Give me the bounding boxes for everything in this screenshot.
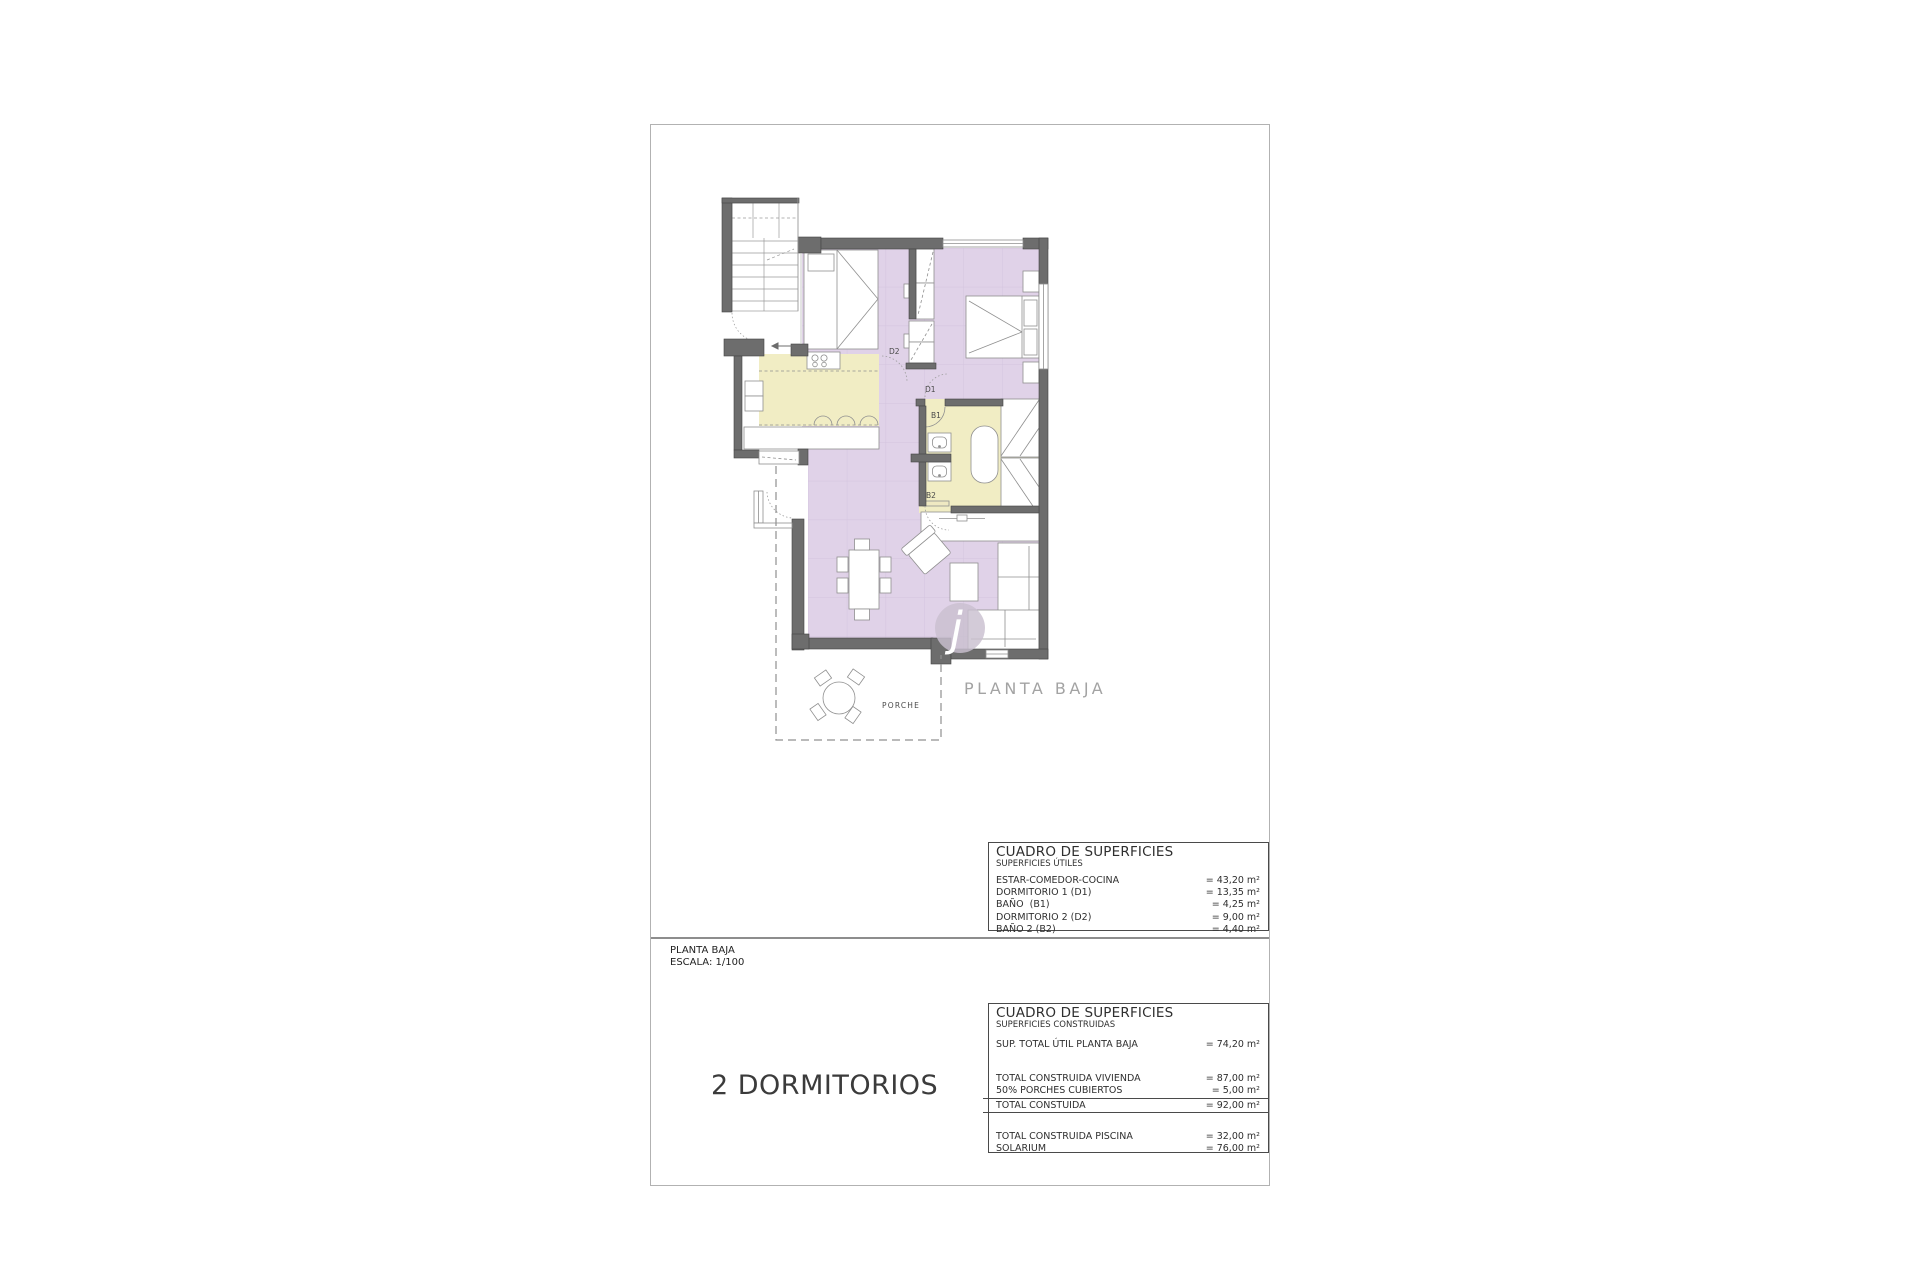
row-value: = 92,00 m² bbox=[1206, 1099, 1260, 1112]
pillow bbox=[808, 254, 834, 271]
plan-title: PLANTA BAJA bbox=[964, 679, 1106, 698]
title-block-divider bbox=[651, 937, 1269, 939]
table-title: CUADRO DE SUPERFICIES bbox=[989, 1004, 1268, 1021]
row-label: 50% PORCHES CUBIERTOS bbox=[996, 1085, 1122, 1097]
row-label: ESTAR-COMEDOR-COCINA bbox=[996, 875, 1119, 887]
nightstand bbox=[1023, 362, 1039, 383]
table-subtitle: SUPERFICIES ÚTILES bbox=[989, 860, 1268, 869]
chair bbox=[880, 557, 891, 572]
pillow bbox=[1024, 329, 1037, 355]
table-row: BAÑO (B1) = 4,25 m² bbox=[989, 899, 1268, 911]
table-row: BAÑO 2 (B2) = 4,40 m² bbox=[989, 924, 1268, 936]
drawing-sheet: PORCHE D2 D1 B1 B2 j PLANTA BAJA CUADRO … bbox=[650, 124, 1270, 1186]
sideboard bbox=[921, 512, 1039, 541]
door-leaf bbox=[923, 501, 949, 506]
table-row: ESTAR-COMEDOR-COCINA = 43,20 m² bbox=[989, 875, 1268, 887]
porch-chair bbox=[814, 670, 831, 686]
row-value: = 87,00 m² bbox=[1206, 1073, 1260, 1085]
row-value: = 5,00 m² bbox=[1212, 1085, 1260, 1097]
bathtub bbox=[971, 426, 998, 483]
fridge bbox=[745, 381, 763, 396]
label-b2: B2 bbox=[926, 491, 936, 500]
row-value: = 13,35 m² bbox=[1206, 887, 1260, 899]
row-value: = 32,00 m² bbox=[1206, 1131, 1260, 1143]
row-label: DORMITORIO 1 (D1) bbox=[996, 887, 1091, 899]
sink bbox=[928, 462, 951, 481]
table-row: 50% PORCHES CUBIERTOS = 5,00 m² bbox=[989, 1085, 1268, 1097]
chair bbox=[855, 609, 870, 620]
row-label: SOLARIUM bbox=[996, 1143, 1046, 1155]
table-row: SOLARIUM = 76,00 m² bbox=[989, 1143, 1268, 1155]
table-superficies-utiles: CUADRO DE SUPERFICIES SUPERFICIES ÚTILES… bbox=[988, 842, 1269, 931]
porch-chair bbox=[810, 703, 826, 720]
chair bbox=[855, 539, 870, 550]
pillow bbox=[1024, 300, 1037, 326]
table-superficies-construidas: CUADRO DE SUPERFICIES SUPERFICIES CONSTR… bbox=[988, 1003, 1269, 1153]
dining-table bbox=[849, 550, 879, 609]
row-label: BAÑO 2 (B2) bbox=[996, 924, 1056, 936]
appliance bbox=[745, 396, 763, 411]
row-label: BAÑO (B1) bbox=[996, 899, 1050, 911]
row-value: = 4,25 m² bbox=[1212, 899, 1260, 911]
porch-table bbox=[823, 682, 855, 714]
sink bbox=[928, 433, 951, 452]
label-d2: D2 bbox=[889, 347, 900, 356]
sheet-footer: PLANTA BAJA ESCALA: 1/100 bbox=[670, 945, 744, 968]
row-label: TOTAL CONSTRUIDA VIVIENDA bbox=[996, 1073, 1141, 1085]
row-value: = 4,40 m² bbox=[1212, 924, 1260, 936]
footer-title: PLANTA BAJA bbox=[670, 945, 744, 957]
table-row: DORMITORIO 1 (D1) = 13,35 m² bbox=[989, 887, 1268, 899]
chair bbox=[880, 578, 891, 593]
table-title: CUADRO DE SUPERFICIES bbox=[989, 843, 1268, 860]
chair bbox=[837, 578, 848, 593]
entry-arrow bbox=[772, 343, 793, 349]
table-row: TOTAL CONSTRUIDA VIVIENDA = 87,00 m² bbox=[989, 1073, 1268, 1085]
coffee-table bbox=[950, 563, 978, 601]
table-row: TOTAL CONSTRUIDA PISCINA = 32,00 m² bbox=[989, 1131, 1268, 1143]
row-value: = 9,00 m² bbox=[1212, 912, 1260, 924]
porch-chair bbox=[847, 669, 864, 685]
row-label: TOTAL CONSTRUIDA PISCINA bbox=[996, 1131, 1133, 1143]
porch-label: PORCHE bbox=[882, 701, 920, 710]
table-subtitle: SUPERFICIES CONSTRUIDAS bbox=[989, 1021, 1268, 1030]
footer-scale: ESCALA: 1/100 bbox=[670, 957, 744, 969]
kitchen-island bbox=[744, 427, 879, 449]
row-label: SUP. TOTAL ÚTIL PLANTA BAJA bbox=[996, 1039, 1138, 1051]
table-row-total: TOTAL CONSTUIDA = 92,00 m² bbox=[983, 1098, 1268, 1113]
label-d1: D1 bbox=[925, 385, 936, 394]
row-value: = 76,00 m² bbox=[1206, 1143, 1260, 1155]
row-label: DORMITORIO 2 (D2) bbox=[996, 912, 1091, 924]
staircase bbox=[732, 203, 798, 342]
row-value: = 74,20 m² bbox=[1206, 1039, 1260, 1051]
chair bbox=[837, 557, 848, 572]
row-label: TOTAL CONSTUIDA bbox=[996, 1099, 1086, 1112]
row-value: = 43,20 m² bbox=[1206, 875, 1260, 887]
tv bbox=[957, 515, 967, 521]
screenshot-root: { "page": { "plan_labels": { "d2": "D2",… bbox=[0, 0, 1920, 1280]
label-b1: B1 bbox=[931, 411, 941, 420]
nightstand bbox=[1023, 271, 1039, 292]
table-row: SUP. TOTAL ÚTIL PLANTA BAJA = 74,20 m² bbox=[989, 1039, 1268, 1051]
bed-dormitorio-2 bbox=[804, 250, 878, 349]
table-row: DORMITORIO 2 (D2) = 9,00 m² bbox=[989, 912, 1268, 924]
dwelling-type-label: 2 DORMITORIOS bbox=[711, 1070, 938, 1101]
